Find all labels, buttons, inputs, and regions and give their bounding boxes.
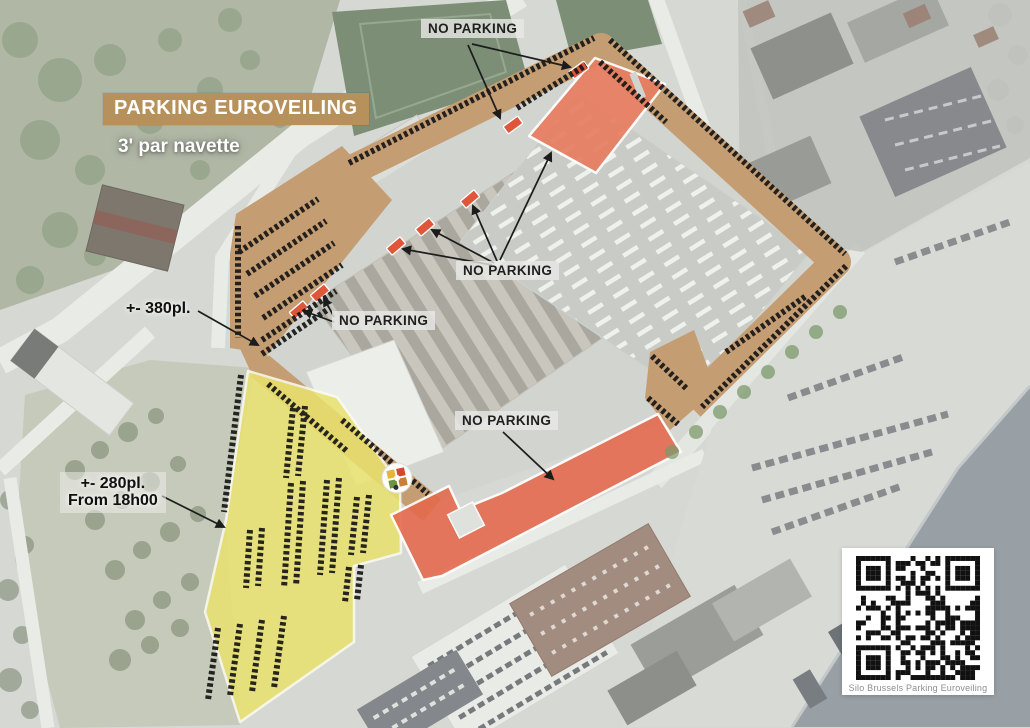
- capacity-evening-places: +- 280pl.: [68, 475, 158, 492]
- no-parking-label-west: NO PARKING: [332, 311, 435, 330]
- no-parking-label-top: NO PARKING: [421, 19, 524, 38]
- capacity-evening-time: From 18h00: [68, 492, 158, 509]
- qr-caption: Silo Brussels Parking Euroveiling: [849, 683, 988, 693]
- qr-code: [856, 556, 980, 680]
- no-parking-label-center: NO PARKING: [456, 261, 559, 280]
- capacity-evening-label: +- 280pl. From 18h00: [60, 472, 166, 513]
- shuttle-frequency-note: 3' par navette: [118, 136, 240, 158]
- capacity-main-label: +- 380pl.: [126, 300, 190, 318]
- qr-card: Silo Brussels Parking Euroveiling: [842, 548, 994, 695]
- parking-map-flyer: PARKING EUROVEILING 3' par navette NO PA…: [0, 0, 1030, 728]
- no-parking-label-south: NO PARKING: [455, 411, 558, 430]
- map-title: PARKING EUROVEILING: [103, 93, 369, 125]
